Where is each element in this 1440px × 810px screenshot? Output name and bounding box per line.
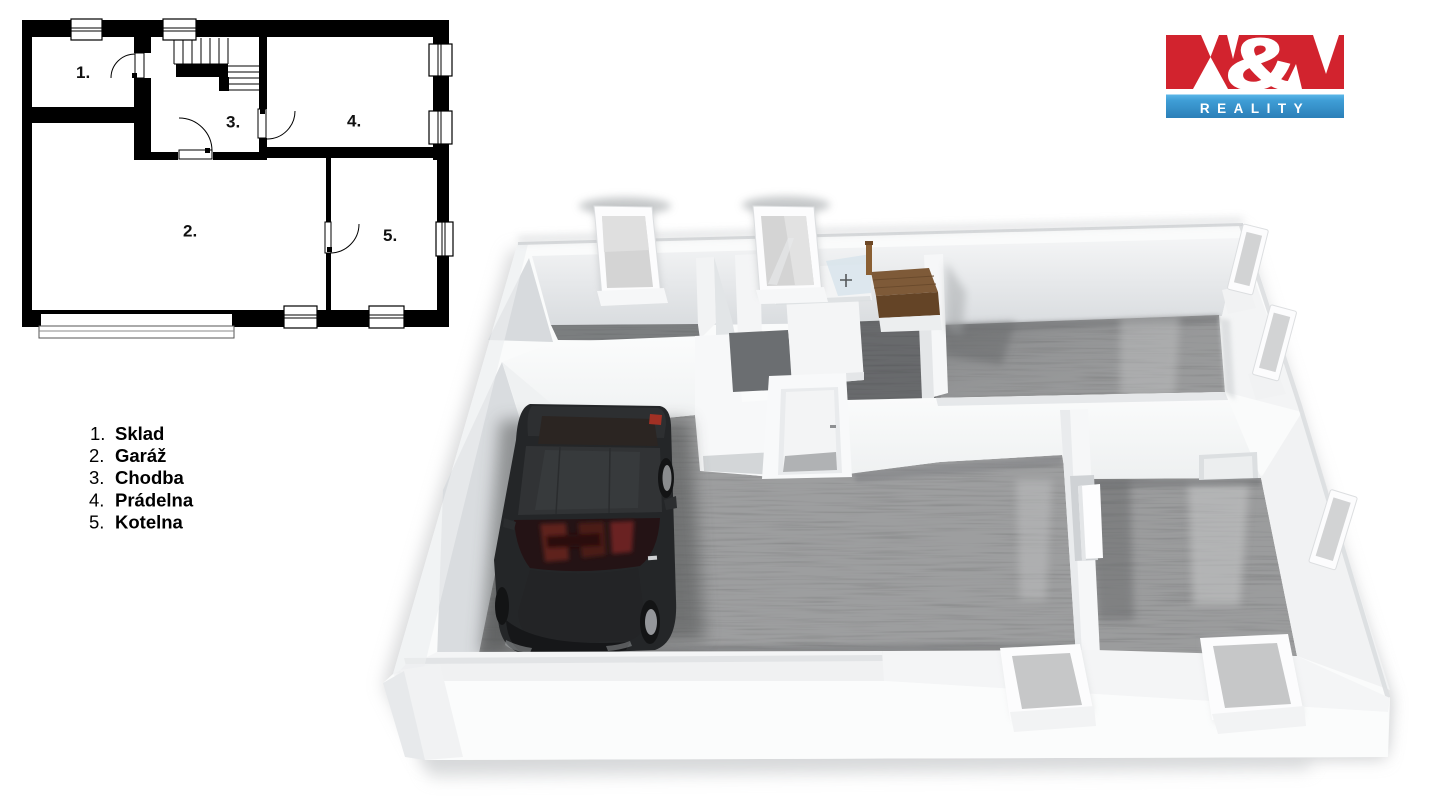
svg-text:Sklad: Sklad xyxy=(115,423,164,444)
svg-text:2.: 2. xyxy=(89,445,104,466)
svg-text:5.: 5. xyxy=(383,226,397,245)
svg-text:3.: 3. xyxy=(89,467,104,488)
svg-text:1.: 1. xyxy=(76,63,90,82)
svg-text:2.: 2. xyxy=(183,222,197,241)
svg-text:1.: 1. xyxy=(90,423,105,444)
svg-text:4.: 4. xyxy=(89,490,104,511)
svg-text:REALITY: REALITY xyxy=(1200,101,1310,116)
svg-text:5.: 5. xyxy=(89,512,104,533)
svg-text:Kotelna: Kotelna xyxy=(115,512,184,533)
svg-text:Prádelna: Prádelna xyxy=(115,490,194,511)
svg-text:Chodba: Chodba xyxy=(115,467,185,488)
svg-text:4.: 4. xyxy=(347,112,361,131)
svg-text:3.: 3. xyxy=(226,113,240,132)
svg-text:Garáž: Garáž xyxy=(115,445,166,466)
